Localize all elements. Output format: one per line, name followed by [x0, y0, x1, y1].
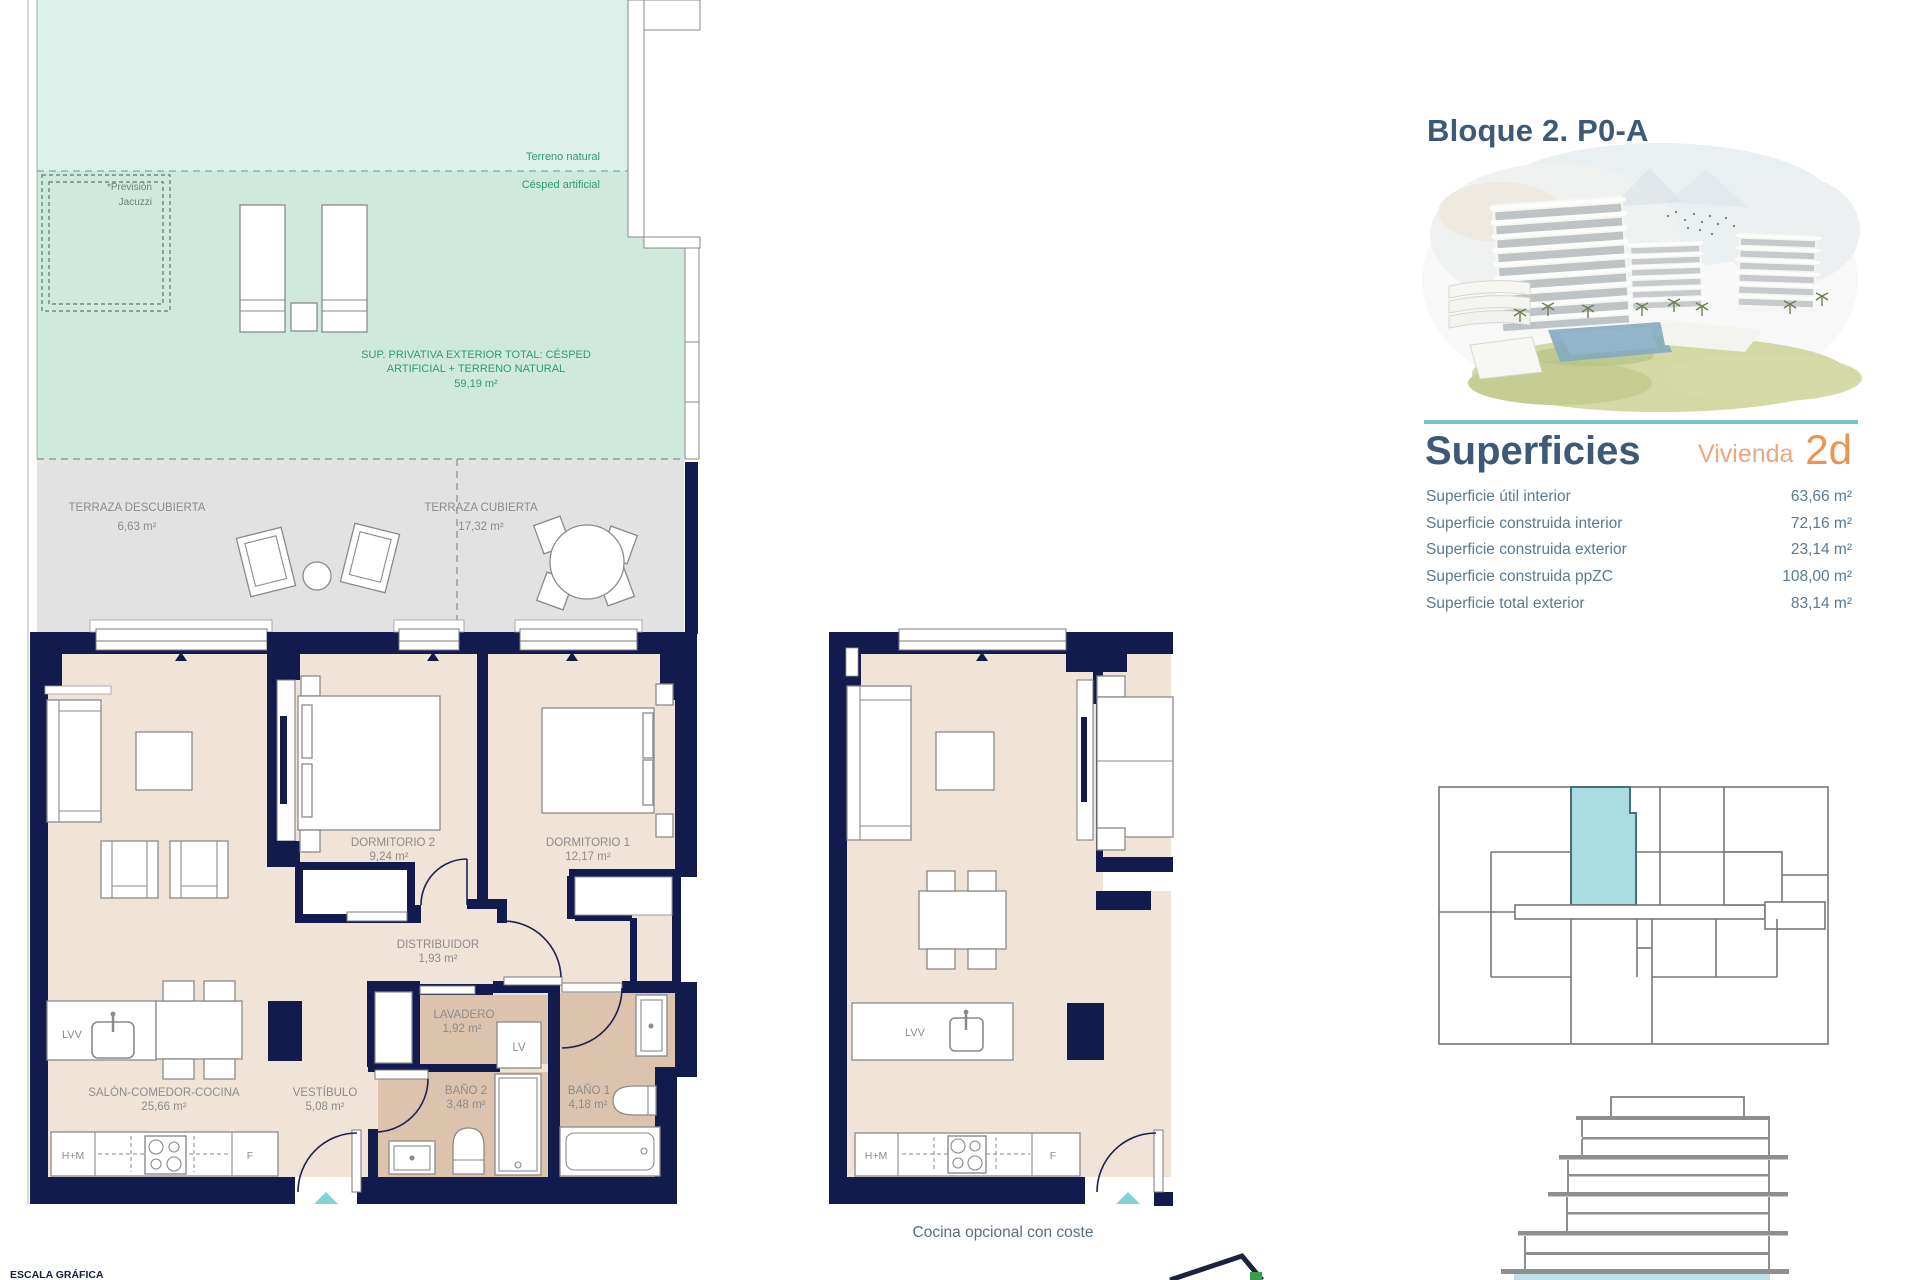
svg-text:4,18 m²: 4,18 m²	[569, 1099, 608, 1111]
svg-text:Cocina opcional con coste: Cocina opcional con coste	[913, 1224, 1094, 1241]
svg-text:DISTRIBUIDOR: DISTRIBUIDOR	[397, 939, 479, 951]
svg-text:SALÓN-COMEDOR-COCINA: SALÓN-COMEDOR-COCINA	[88, 1086, 240, 1099]
svg-text:DORMITORIO 2: DORMITORIO 2	[351, 837, 435, 849]
svg-text:LVV: LVV	[62, 1029, 83, 1041]
svg-text:ESCALA GRÁFICA: ESCALA GRÁFICA	[10, 1268, 104, 1280]
svg-text:Césped artificial: Césped artificial	[522, 179, 600, 191]
svg-text:Bloque 2. P0-A: Bloque 2. P0-A	[1427, 113, 1649, 148]
svg-text:LV: LV	[512, 1042, 526, 1054]
svg-text:83,14 m²: 83,14 m²	[1791, 595, 1852, 612]
svg-text:DORMITORIO 1: DORMITORIO 1	[546, 837, 630, 849]
svg-text:12,17 m²: 12,17 m²	[565, 851, 611, 863]
svg-text:SUP. PRIVATIVA EXTERIOR TOTAL:: SUP. PRIVATIVA EXTERIOR TOTAL: CÉSPED	[361, 348, 591, 361]
svg-text:ARTIFICIAL + TERRENO NATURAL: ARTIFICIAL + TERRENO NATURAL	[387, 363, 565, 375]
svg-text:LVV: LVV	[905, 1027, 926, 1039]
svg-text:Superficie total exterior: Superficie total exterior	[1426, 595, 1585, 612]
svg-text:Superficie construida ppZC: Superficie construida ppZC	[1426, 568, 1613, 585]
svg-text:63,66 m²: 63,66 m²	[1791, 488, 1852, 505]
svg-text:F: F	[247, 1150, 253, 1162]
svg-text:72,16 m²: 72,16 m²	[1791, 515, 1852, 532]
svg-text:Jacuzzi: Jacuzzi	[119, 197, 152, 208]
svg-text:9,24 m²: 9,24 m²	[370, 851, 409, 863]
svg-text:3,48 m²: 3,48 m²	[447, 1099, 486, 1111]
svg-text:1,93 m²: 1,93 m²	[419, 953, 458, 965]
svg-text:Superficie construida exterior: Superficie construida exterior	[1426, 541, 1627, 558]
svg-text:Vivienda: Vivienda	[1698, 440, 1794, 468]
svg-text:5,08 m²: 5,08 m²	[306, 1101, 345, 1113]
svg-text:25,66 m²: 25,66 m²	[141, 1101, 187, 1113]
svg-text:BAÑO 2: BAÑO 2	[445, 1084, 487, 1097]
svg-text:Superficie construida interior: Superficie construida interior	[1426, 515, 1622, 532]
svg-text:TERRAZA CUBIERTA: TERRAZA CUBIERTA	[424, 502, 538, 514]
svg-text:H+M: H+M	[865, 1150, 887, 1162]
svg-text:H+M: H+M	[62, 1150, 84, 1162]
svg-text:59,19 m²: 59,19 m²	[454, 378, 498, 390]
svg-text:F: F	[1050, 1150, 1056, 1162]
svg-text:6,63 m²: 6,63 m²	[118, 521, 157, 533]
svg-text:23,14 m²: 23,14 m²	[1791, 541, 1852, 558]
svg-text:LAVADERO: LAVADERO	[434, 1009, 495, 1021]
svg-text:BAÑO 1: BAÑO 1	[568, 1084, 610, 1097]
svg-text:Superficies: Superficies	[1425, 429, 1641, 473]
svg-text:VESTÍBULO: VESTÍBULO	[293, 1086, 358, 1099]
svg-text:*Previsión: *Previsión	[107, 182, 152, 193]
svg-text:TERRAZA DESCUBIERTA: TERRAZA DESCUBIERTA	[69, 502, 206, 514]
svg-text:Superficie útil interior: Superficie útil interior	[1426, 488, 1571, 505]
svg-text:108,00 m²: 108,00 m²	[1782, 568, 1852, 585]
svg-text:Terreno natural: Terreno natural	[526, 151, 600, 163]
svg-text:17,32 m²: 17,32 m²	[458, 521, 504, 533]
svg-text:2d: 2d	[1805, 426, 1852, 473]
svg-text:1,92 m²: 1,92 m²	[443, 1023, 482, 1035]
